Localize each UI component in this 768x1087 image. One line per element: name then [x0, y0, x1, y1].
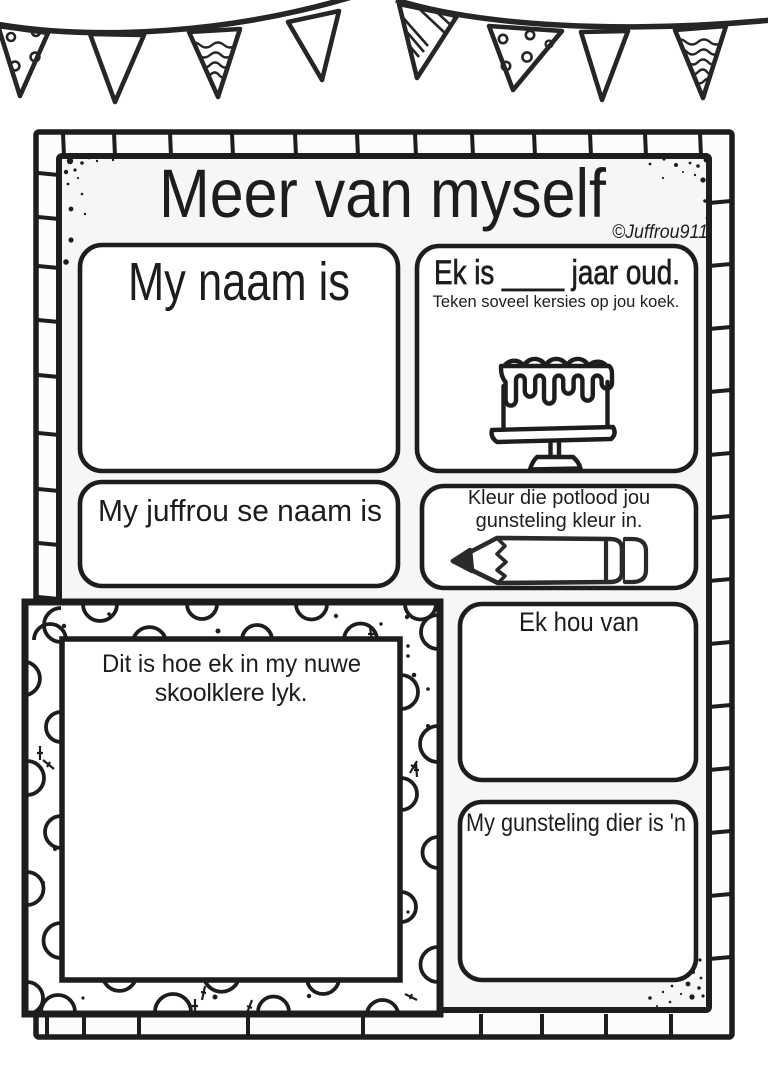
- svg-text:Dit is hoe ek in my nuwe: Dit is hoe ek in my nuwe: [102, 650, 361, 678]
- svg-text:Meer van myself: Meer van myself: [159, 155, 607, 232]
- svg-text:Kleur die potlood jou: Kleur die potlood jou: [468, 487, 650, 509]
- svg-text:©Juffrou911: ©Juffrou911: [612, 222, 708, 243]
- svg-text:Ek hou van: Ek hou van: [519, 607, 639, 637]
- svg-text:skoolklere lyk.: skoolklere lyk.: [155, 679, 308, 707]
- svg-text:Teken soveel kersies op jou ko: Teken soveel kersies op jou koek.: [433, 293, 680, 311]
- svg-text:My juffrou se naam is: My juffrou se naam is: [98, 493, 382, 528]
- svg-text:My gunsteling dier is 'n: My gunsteling dier is 'n: [466, 809, 686, 837]
- svg-text:My naam is: My naam is: [128, 252, 350, 312]
- svg-text:Ek is ____ jaar oud.: Ek is ____ jaar oud.: [434, 254, 680, 292]
- svg-text:gunsteling kleur in.: gunsteling kleur in.: [476, 510, 643, 532]
